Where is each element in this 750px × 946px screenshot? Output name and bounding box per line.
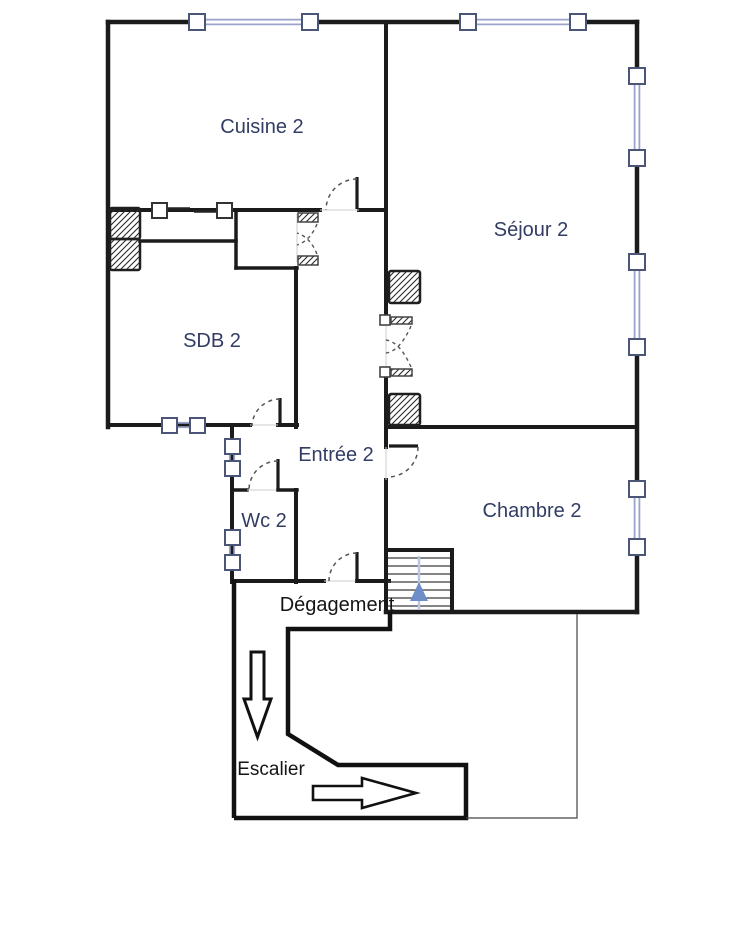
room-label-wc: Wc 2	[241, 510, 287, 532]
floor-plan: Cuisine 2 Séjour 2 SDB 2 Entrée 2 Wc 2 C…	[0, 0, 750, 946]
label-escalier: Escalier	[237, 759, 305, 780]
room-label-cuisine: Cuisine 2	[220, 116, 303, 138]
room-label-entree: Entrée 2	[298, 444, 374, 466]
duct-hatched-box	[110, 239, 140, 270]
room-label-sejour: Séjour 2	[494, 219, 569, 241]
room-label-chambre: Chambre 2	[483, 500, 582, 522]
room-label-sdb: SDB 2	[183, 330, 241, 352]
duct-hatched-box	[389, 271, 420, 303]
duct-hatched-box	[110, 208, 140, 239]
label-degagement: Dégagement	[280, 594, 395, 616]
duct-hatched-box	[389, 394, 420, 425]
